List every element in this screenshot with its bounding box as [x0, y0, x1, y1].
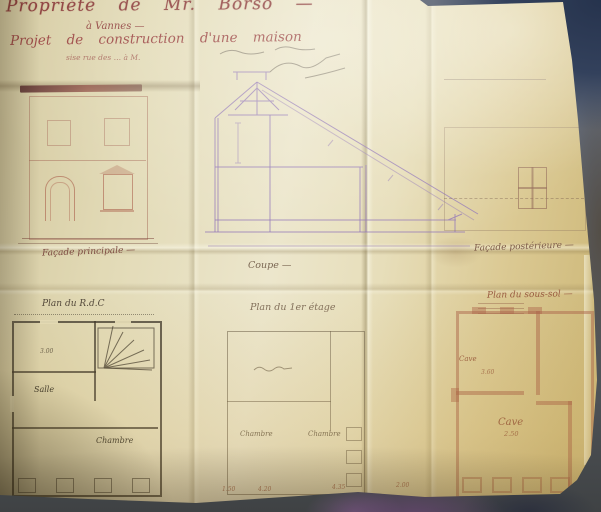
dimension-text: 3.60 — [481, 369, 494, 376]
plan-etage-label: Plan du 1er étage — [250, 302, 336, 313]
etage-interior-wall — [227, 401, 331, 402]
rdc-wall-opening — [10, 396, 14, 412]
faint-room-label-scribble — [252, 364, 294, 374]
dimension-text: 4.35 — [332, 484, 345, 491]
coupe-label: Coupe — — [248, 260, 291, 271]
plan-etage-outline — [227, 331, 365, 495]
facade-upper-window — [104, 118, 130, 146]
room-label-salle: Salle — [34, 385, 54, 394]
room-label-cave: Cave — [498, 417, 523, 428]
fold-crease-vertical — [188, 0, 200, 512]
rdc-staircase — [96, 326, 158, 400]
facade-upper-window — [47, 120, 71, 146]
sous-sol-window-pier — [472, 307, 486, 314]
facade-ground-line — [18, 243, 158, 244]
facade-string-course — [29, 160, 146, 161]
sous-sol-pilaster — [462, 477, 482, 493]
etage-closet — [346, 473, 362, 487]
sous-sol-pilaster — [522, 477, 542, 493]
room-label-cave: Cave — [459, 355, 477, 363]
title-address-note: sise rue des … à M. — [66, 53, 140, 62]
rdc-pilaster — [18, 478, 36, 493]
rdc-interior-wall — [12, 427, 158, 429]
rdc-interior-wall — [12, 371, 96, 373]
room-label-chambre: Chambre — [96, 436, 133, 445]
rdc-pilaster — [94, 478, 112, 493]
facade-posterieure-floor-line — [444, 198, 584, 199]
rdc-pilaster — [56, 478, 74, 493]
etage-interior-wall — [330, 331, 331, 431]
facade-window-pediment — [99, 165, 135, 174]
room-label-chambre: Chambre — [240, 430, 273, 438]
facade-principale-label: Façade principale — — [42, 245, 136, 258]
etage-closet — [346, 450, 362, 464]
etage-closet — [346, 427, 362, 441]
facade-arched-door-inner — [50, 182, 70, 221]
photo-of-architectural-drawing: Propriété de Mr. Borso — à Vannes — Proj… — [0, 0, 601, 512]
stray-construction-line — [444, 79, 546, 80]
plan-sous-sol-label: Plan du sous-sol — — [487, 289, 573, 300]
rdc-pilaster — [132, 478, 150, 493]
rdc-wall-opening — [40, 320, 58, 324]
room-label-chambre: Chambre — [308, 430, 341, 438]
facade-window-sill — [100, 210, 134, 212]
dimension-text: 3.00 — [40, 348, 53, 355]
sous-sol-interior-wall — [456, 391, 524, 395]
sous-sol-window-pier — [500, 307, 514, 314]
sous-sol-interior-wall — [536, 401, 572, 405]
facade-window — [103, 174, 133, 210]
dimension-text: 2.00 — [396, 482, 409, 489]
title-property-owner: Propriété de Mr. Borso — — [6, 0, 314, 16]
dimension-text: 1.50 — [222, 486, 235, 493]
sous-sol-interior-wall — [536, 311, 540, 395]
plan-rdc-label: Plan du R.d.C — [42, 299, 105, 309]
facade-posterieure-outline — [444, 127, 586, 231]
dimension-text: 4.20 — [258, 486, 271, 493]
rdc-wall-opening — [115, 320, 131, 324]
facade-ground-line — [22, 238, 154, 239]
facade-posterieure-window — [518, 167, 547, 209]
plan-paper-sheet: Propriété de Mr. Borso — à Vannes — Proj… — [0, 0, 601, 512]
plan-sous-sol-outline — [456, 311, 594, 499]
sous-sol-interior-wall — [568, 401, 572, 489]
coupe-section-drawing — [200, 68, 485, 253]
sous-sol-pilaster — [492, 477, 512, 493]
dimension-text: 2.50 — [504, 430, 518, 438]
rdc-dimension-line — [14, 314, 154, 315]
facade-cornice — [20, 84, 142, 92]
